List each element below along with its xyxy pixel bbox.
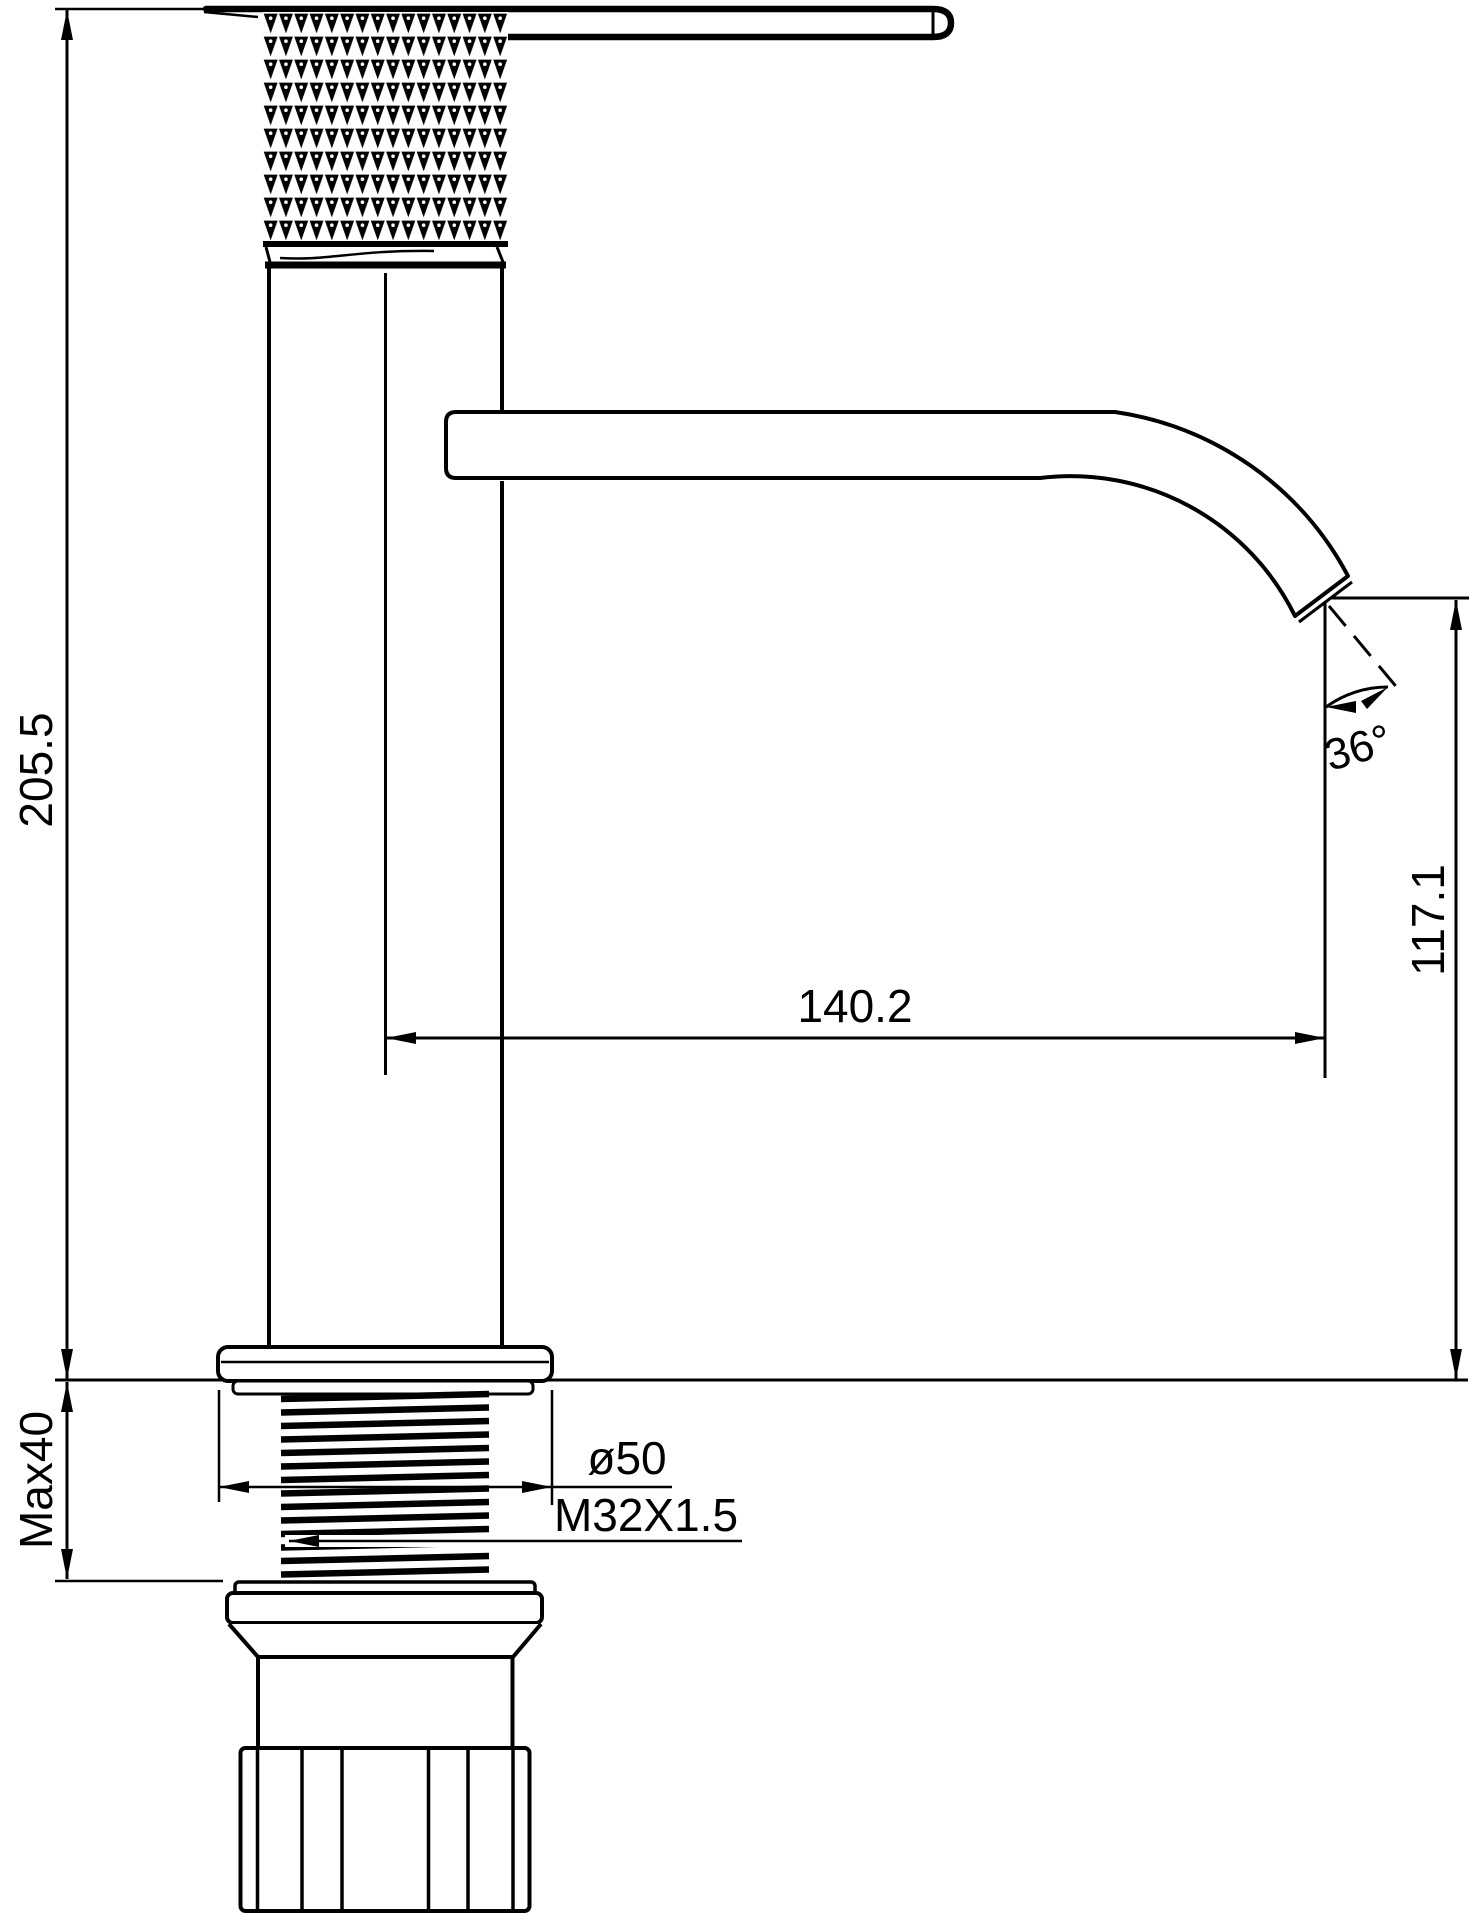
mounting-thread <box>281 1394 489 1575</box>
base-flange <box>218 1347 552 1381</box>
lower-cone <box>229 1624 541 1657</box>
locknut <box>241 1748 530 1911</box>
cap-collar <box>265 247 506 265</box>
spout <box>446 412 1348 616</box>
lower-cylinder <box>258 1657 513 1748</box>
handle-lever-left-taper <box>204 12 258 17</box>
faucet-outline <box>204 9 1352 1911</box>
max-thickness-label: Max40 <box>10 1411 62 1549</box>
dimension-max-thickness: Max40 <box>10 1382 223 1581</box>
dimension-overall-height: 205.5 <box>10 9 206 1379</box>
spout-reach-label: 140.2 <box>797 980 912 1032</box>
drawing-svg: 205.5 Max40 140.2 117.1 36° <box>0 0 1483 1920</box>
faucet-technical-drawing: 205.5 Max40 140.2 117.1 36° <box>0 0 1483 1920</box>
outlet-angle-label: 36° <box>1319 715 1396 780</box>
overall-height-label: 205.5 <box>10 712 62 827</box>
dimension-outlet-height: 117.1 <box>1332 598 1469 1379</box>
dimension-outlet-angle: 36° <box>1319 606 1399 781</box>
knurled-cap <box>263 12 508 243</box>
lower-ring <box>227 1593 542 1623</box>
flange-diameter-label: ø50 <box>587 1432 666 1484</box>
outlet-height-label: 117.1 <box>1402 864 1454 976</box>
dimension-spout-reach: 140.2 <box>386 273 1326 1078</box>
thread-spec-label: M32X1.5 <box>554 1489 738 1541</box>
